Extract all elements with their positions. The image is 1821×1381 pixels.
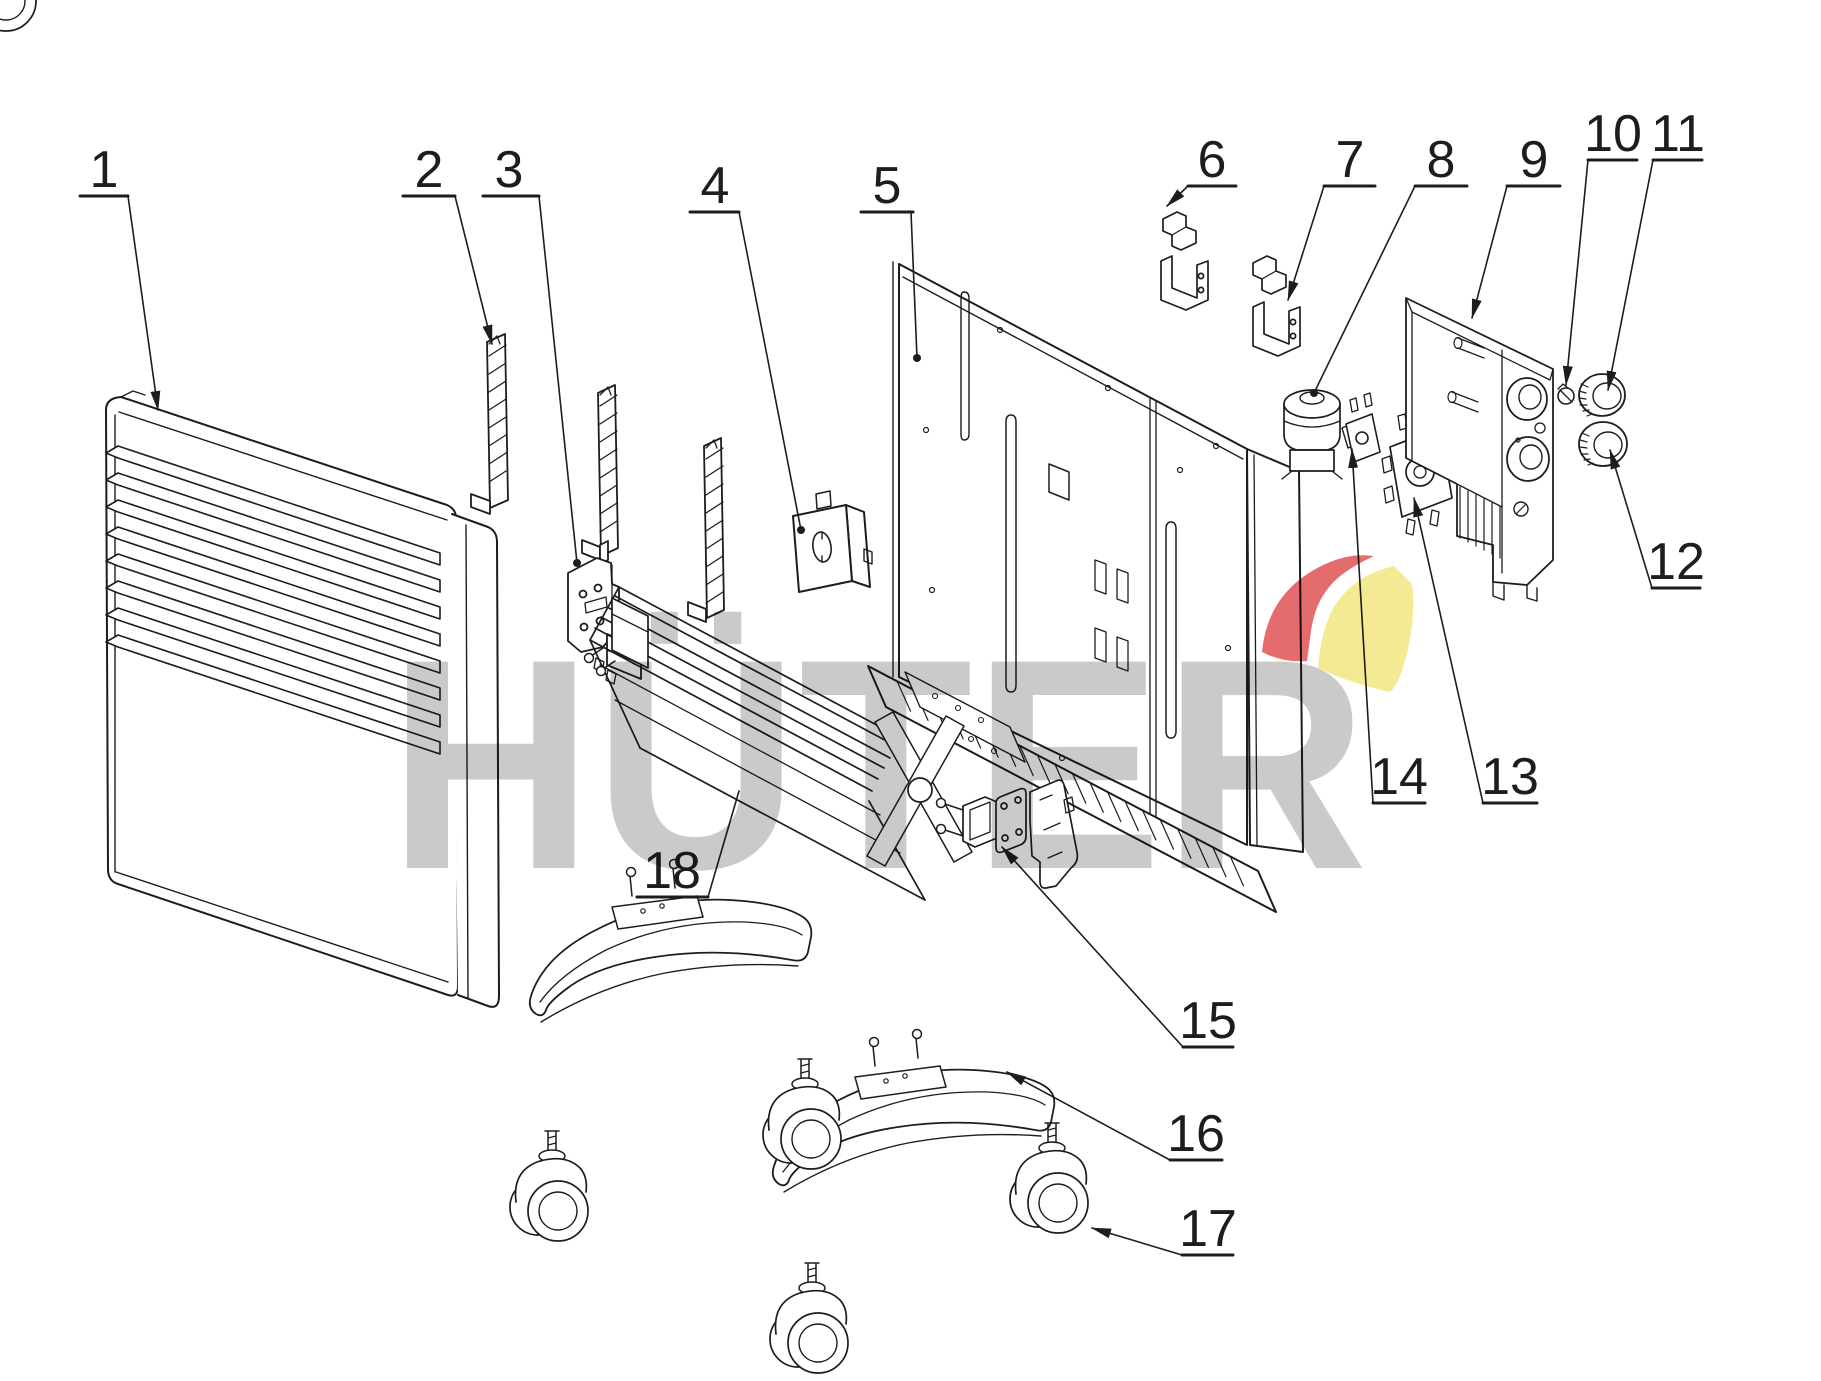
part-label-1: 1 xyxy=(90,141,119,199)
leader-line-10 xyxy=(1566,160,1588,385)
knob-upper-drawing xyxy=(1579,374,1625,416)
leader-dot-4 xyxy=(797,526,805,534)
part-label-16: 16 xyxy=(1167,1105,1225,1163)
part-label-4: 4 xyxy=(701,157,730,215)
part-label-9: 9 xyxy=(1520,131,1549,189)
part-label-14: 14 xyxy=(1370,748,1428,806)
leader-line-3 xyxy=(539,196,577,563)
leader-line-17 xyxy=(1092,1228,1182,1255)
leader-line-11 xyxy=(1608,160,1653,390)
thermal-cutout-drawing xyxy=(1346,393,1380,462)
clip-brackets-7-drawing xyxy=(1253,256,1300,356)
clip-brackets-6-drawing xyxy=(1161,212,1208,310)
leader-line-1 xyxy=(128,196,158,410)
leader-line-7 xyxy=(1288,186,1324,300)
leader-dot-8 xyxy=(1310,389,1318,397)
leader-dot-5 xyxy=(913,354,921,362)
part-label-13: 13 xyxy=(1481,748,1539,806)
watermark: HÜTER xyxy=(388,555,1413,932)
leader-line-4 xyxy=(739,212,801,530)
leader-line-2 xyxy=(455,196,492,344)
part-label-3: 3 xyxy=(495,141,524,199)
part-label-10: 10 xyxy=(1584,105,1642,163)
watermark-text: HÜTER xyxy=(388,596,1368,932)
leader-line-6 xyxy=(1167,186,1188,206)
push-nut-drawing xyxy=(1558,384,1574,404)
part-label-11: 11 xyxy=(1651,105,1705,163)
part-label-7: 7 xyxy=(1336,131,1365,189)
knob-lower-drawing xyxy=(1579,422,1627,466)
caster-drawing xyxy=(0,0,36,31)
part-label-2: 2 xyxy=(415,141,444,199)
part-label-15: 15 xyxy=(1179,992,1237,1050)
control-bracket-drawing xyxy=(1406,298,1553,601)
small-box-drawing xyxy=(793,491,872,592)
leader-dot-3 xyxy=(573,559,581,567)
part-label-8: 8 xyxy=(1427,131,1456,189)
exploded-diagram: 123456789101112131415161718 HÜTER xyxy=(0,0,1821,1381)
leader-line-9 xyxy=(1472,186,1507,318)
part-label-5: 5 xyxy=(873,157,902,215)
leader-line-8 xyxy=(1314,186,1415,393)
leader-line-12 xyxy=(1610,450,1652,588)
part-label-12: 12 xyxy=(1647,533,1705,591)
part-label-6: 6 xyxy=(1198,131,1227,189)
part-label-17: 17 xyxy=(1179,1200,1237,1258)
